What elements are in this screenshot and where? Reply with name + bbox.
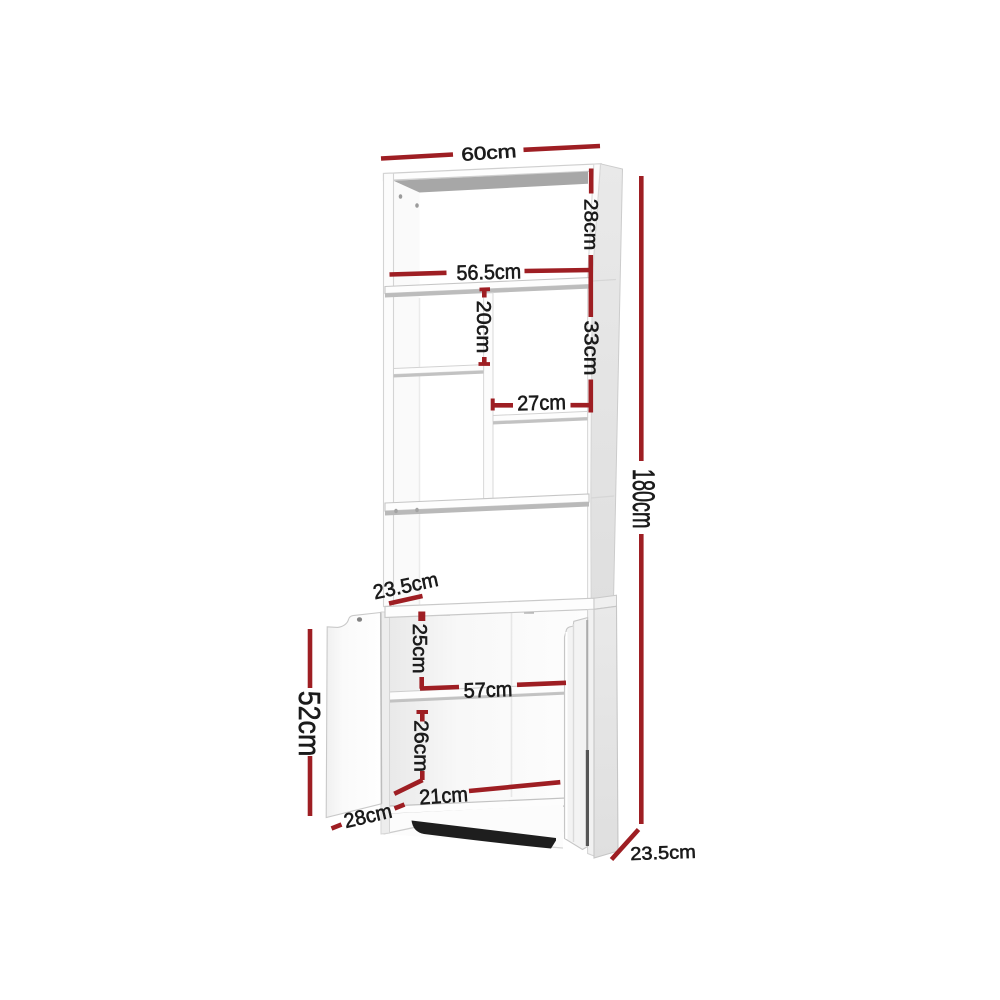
svg-text:23.5cm: 23.5cm: [630, 842, 696, 864]
svg-text:21cm: 21cm: [418, 783, 468, 810]
svg-text:33cm: 33cm: [580, 320, 603, 375]
svg-text:60cm: 60cm: [461, 141, 517, 165]
svg-text:25cm: 25cm: [408, 624, 430, 674]
svg-text:57cm: 57cm: [463, 678, 513, 703]
svg-text:20cm: 20cm: [472, 301, 494, 354]
svg-text:28cm: 28cm: [580, 199, 601, 250]
svg-text:52cm: 52cm: [292, 691, 326, 757]
svg-text:27cm: 27cm: [517, 391, 566, 416]
svg-text:180cm: 180cm: [626, 469, 662, 529]
svg-text:26cm: 26cm: [410, 720, 432, 772]
svg-text:56.5cm: 56.5cm: [456, 261, 521, 285]
